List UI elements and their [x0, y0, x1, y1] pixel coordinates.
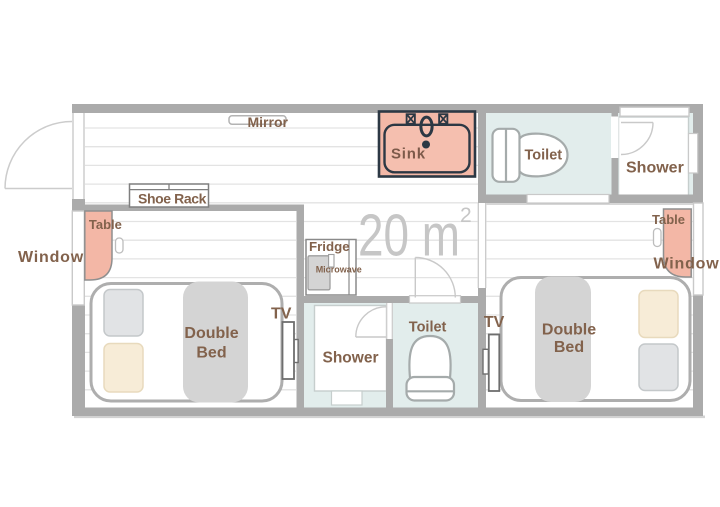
svg-text:TV: TV	[484, 314, 505, 331]
svg-text:Shower: Shower	[323, 350, 379, 367]
svg-text:Fridge: Fridge	[309, 239, 350, 254]
svg-text:Window: Window	[18, 249, 84, 266]
svg-text:Toilet: Toilet	[525, 148, 563, 164]
svg-text:Shoe Rack: Shoe Rack	[138, 191, 207, 207]
svg-text:Shower: Shower	[626, 160, 684, 177]
svg-text:Toilet: Toilet	[409, 320, 447, 336]
svg-text:TV: TV	[271, 306, 292, 323]
svg-text:Sink: Sink	[391, 146, 426, 163]
svg-text:Bed: Bed	[196, 345, 226, 362]
svg-text:Bed: Bed	[554, 339, 584, 356]
svg-text:Window: Window	[654, 256, 720, 273]
svg-text:Microwave: Microwave	[316, 265, 362, 275]
svg-text:Double: Double	[542, 322, 596, 339]
svg-text:Mirror: Mirror	[248, 114, 289, 130]
svg-text:Table: Table	[652, 212, 685, 227]
svg-text:2: 2	[460, 204, 472, 227]
svg-text:Table: Table	[89, 217, 122, 232]
svg-text:Double: Double	[184, 325, 238, 342]
svg-text:20 m: 20 m	[358, 203, 460, 269]
